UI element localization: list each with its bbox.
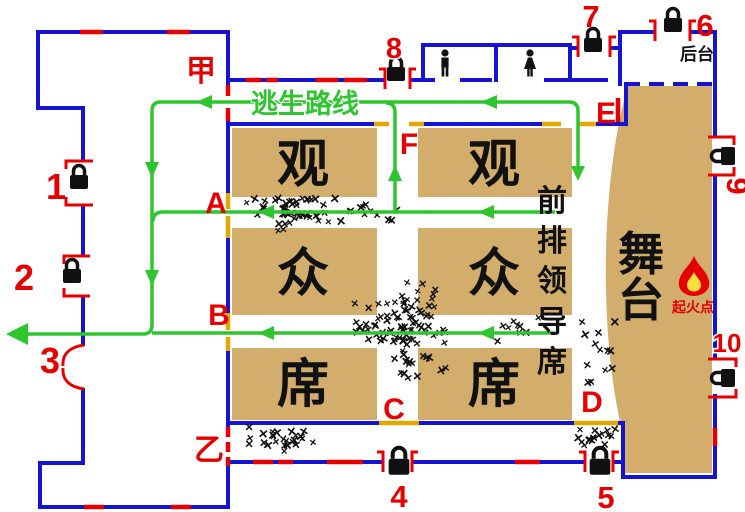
arrow-down-lobby-1	[145, 162, 159, 178]
padlock-icon-exit-2	[63, 260, 81, 284]
arrow-left-b-1	[478, 326, 494, 340]
backstage-label: 后台	[680, 44, 714, 64]
seat-left-char-3: 席	[277, 356, 329, 414]
crowd-x-mark: ×	[402, 275, 412, 290]
front-row-char-1: 前	[537, 185, 567, 218]
escape-route-label: 逃生路线	[251, 88, 359, 119]
exit-3-label: 3	[40, 340, 60, 381]
crowd-x-mark: ×	[577, 315, 586, 330]
seat-right-char-1: 观	[468, 136, 520, 194]
arrow-left-a-1	[478, 205, 494, 219]
crowd-x-mark: ×	[419, 348, 428, 363]
arrow-down-lobby-2	[145, 270, 159, 286]
crowd-x-mark: ×	[374, 296, 384, 311]
padlock-icon-exit-4	[389, 448, 410, 475]
crowd-x-mark: ×	[383, 308, 391, 323]
exit-1-label: 1	[46, 166, 66, 207]
exit-5-label: 5	[597, 480, 614, 512]
toilet-icons	[441, 49, 536, 76]
arrow-up-f	[388, 165, 402, 181]
marker-yi: 乙	[194, 434, 224, 467]
seat-right-char-2: 众	[468, 245, 520, 303]
exit-8-label: 8	[386, 33, 402, 65]
marker-c: C	[383, 393, 405, 426]
marker-d: D	[581, 386, 603, 419]
seat-left-char-2: 众	[277, 245, 329, 303]
padlock-icon-exit-9	[712, 147, 736, 165]
seat-left-char-1: 观	[277, 136, 329, 194]
seat-right-char-3: 席	[468, 356, 520, 414]
crowd-x-mark: ×	[605, 343, 616, 361]
crowd-cluster-front-row-right: ×××××××××	[493, 310, 543, 349]
padlock-icon-exit-1	[70, 166, 88, 190]
crowd-cluster-corridor-yi: ××××××××××××××××××××××××××	[245, 419, 318, 458]
female-toilet-icon	[524, 49, 536, 76]
arrow-exit-3	[6, 323, 28, 345]
crowd-x-mark: ×	[245, 431, 255, 446]
exit-6-label: 6	[696, 8, 713, 43]
diagram-canvas: ××××××××××××××××××××××××××××××××××××××××…	[0, 0, 745, 512]
crowd-x-mark: ×	[309, 435, 318, 450]
arrow-left-corridor-2	[196, 95, 212, 109]
marker-f: F	[400, 128, 418, 161]
crowd-x-mark: ×	[362, 317, 371, 333]
route-aisle-f	[386, 103, 395, 213]
marker-e: E	[596, 97, 616, 130]
front-row-char-5: 席	[537, 345, 567, 379]
crowd-x-mark: ×	[403, 336, 411, 352]
arrow-left-corridor-1	[481, 95, 497, 109]
stage-char-1: 舞	[618, 228, 664, 280]
crowd-x-mark: ×	[412, 368, 422, 386]
padlock-icon-exit-10	[712, 369, 736, 387]
marker-b: B	[208, 299, 230, 332]
stage-char-2: 台	[618, 274, 664, 326]
crowd-x-mark: ×	[389, 350, 399, 367]
crowd-x-mark: ×	[428, 309, 436, 323]
arrow-left-b-2	[258, 326, 274, 340]
exit-9-label: 9	[720, 177, 745, 194]
crowd-x-mark: ×	[493, 333, 502, 349]
exit-2-label: 2	[14, 257, 34, 298]
marker-a: A	[205, 187, 227, 220]
exit-7-label: 7	[582, 0, 599, 34]
padlock-icon-exit-6	[664, 9, 682, 33]
crowd-x-mark: ×	[329, 190, 340, 208]
crowd-x-mark: ×	[279, 222, 287, 236]
front-row-char-3: 领	[537, 264, 567, 298]
exit-4-label: 4	[390, 479, 408, 512]
fire-point-label: 起火点	[671, 299, 714, 315]
male-toilet-icon	[441, 49, 448, 76]
front-row-char-2: 排	[537, 225, 567, 258]
crowd-x-mark: ×	[365, 300, 373, 315]
exit-10-label: 10	[713, 328, 742, 358]
evacuation-diagram: ××××××××××××××××××××××××××××××××××××××××…	[0, 0, 745, 512]
marker-jia: 甲	[186, 55, 216, 88]
crowd-x-mark: ×	[431, 282, 439, 297]
crowd-x-mark: ×	[387, 212, 397, 229]
front-row-char-4: 导	[537, 306, 567, 339]
crowd-x-mark: ×	[253, 207, 263, 223]
crowd-x-mark: ×	[429, 328, 439, 343]
crowd-x-mark: ×	[582, 357, 592, 373]
exit-3-open-door	[63, 345, 84, 389]
arrow-down-e	[571, 166, 585, 181]
